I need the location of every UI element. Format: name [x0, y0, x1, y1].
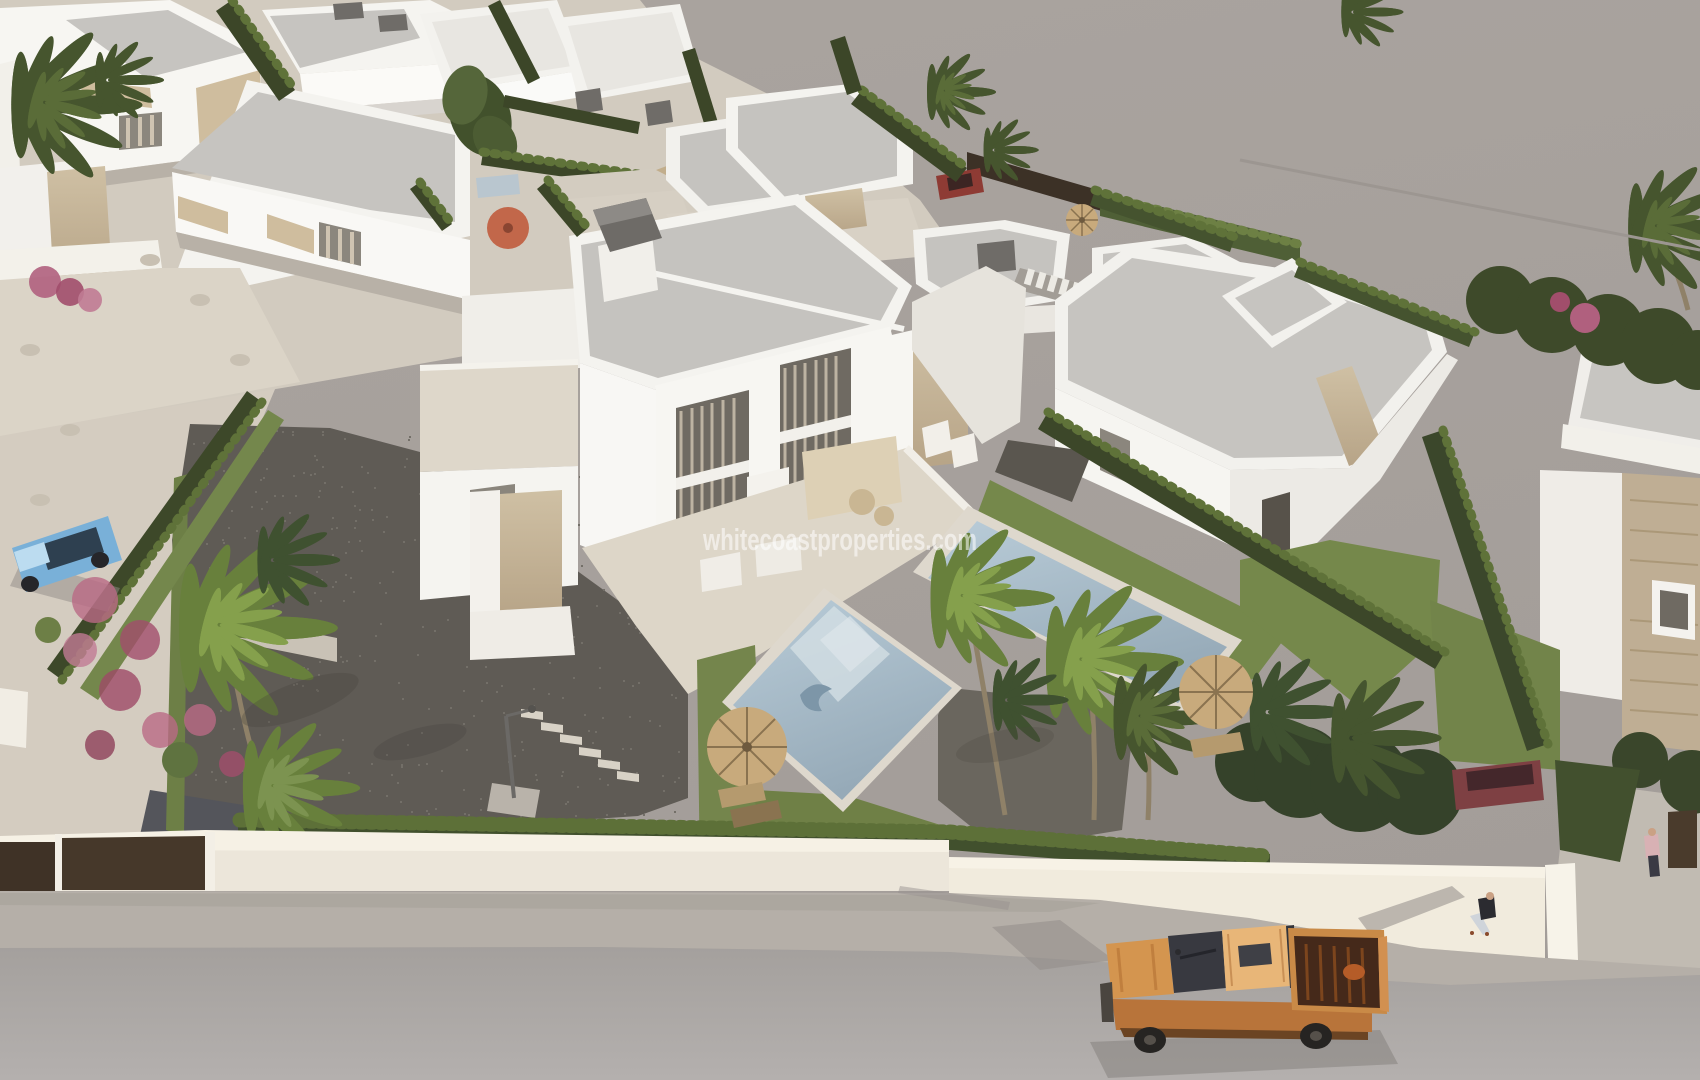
- svg-text:whitecoastproperties.com: whitecoastproperties.com: [702, 522, 977, 557]
